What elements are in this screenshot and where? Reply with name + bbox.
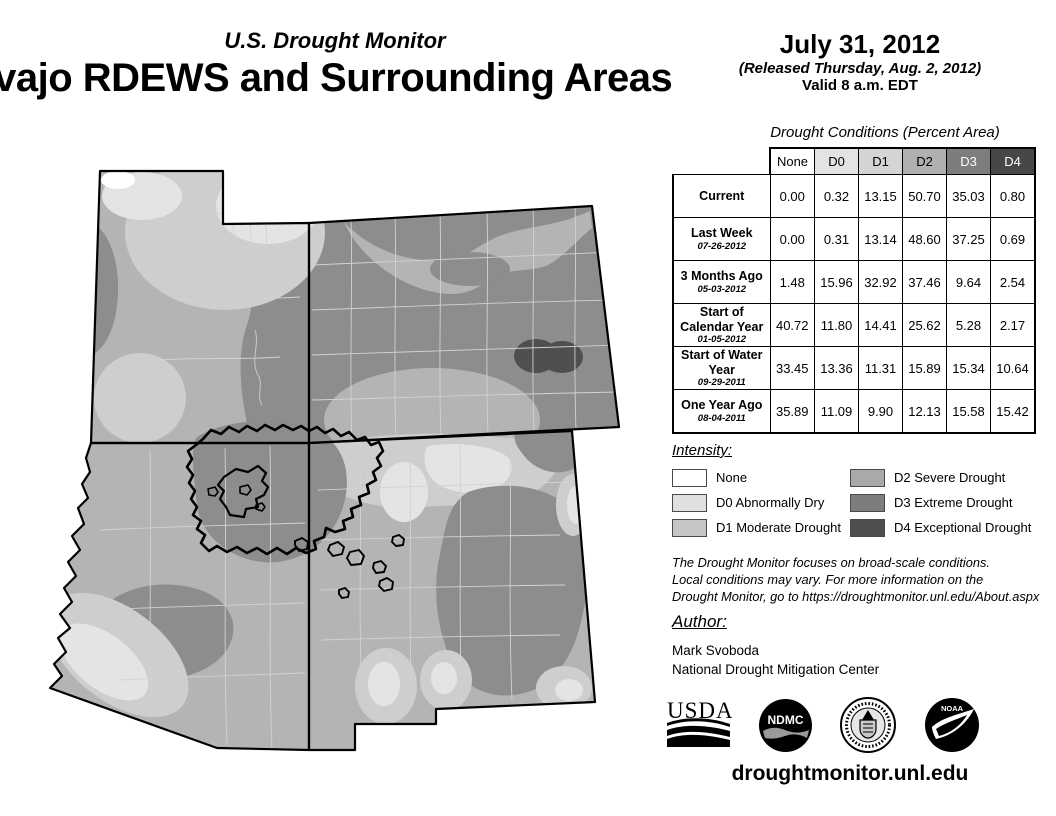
legend-swatch [672,519,707,537]
legend-item: D2 Severe Drought [850,465,1052,490]
usda-logo: USDA [666,699,732,751]
ndmc-logo: NDMC [758,698,813,753]
row-label: One Year Ago08-04-2011 [673,390,770,434]
value-cell: 11.09 [815,390,859,434]
value-cell: 13.36 [815,347,859,390]
row-label-text: Start of Calendar Year [674,305,770,334]
value-cell: 5.28 [947,304,991,347]
release-date: (Released Thursday, Aug. 2, 2012) [690,60,1030,77]
column-header-d2: D2 [903,148,947,175]
logo-row: USDA NDMC NOAA [666,696,1046,754]
value-cell: 15.58 [947,390,991,434]
valid-time: Valid 8 a.m. EDT [690,77,1030,94]
value-cell: 0.00 [770,175,815,218]
value-cell: 37.46 [903,261,947,304]
intensity-legend: Intensity: NoneD0 Abnormally DryD1 Moder… [672,442,1052,540]
table-row: Start of Calendar Year01-05-201240.7211.… [673,304,1035,347]
legend-item: D1 Moderate Drought [672,515,850,540]
corner-cell [673,148,770,175]
disclaimer-line: Drought Monitor, go to https://droughtmo… [672,588,1052,605]
map-date: July 31, 2012 [690,30,1030,60]
row-label-date: 05-03-2012 [674,284,770,295]
legend-label: D3 Extreme Drought [885,495,1013,510]
map-title: Navajo RDEWS and Surrounding Areas [0,56,672,101]
value-cell: 12.13 [903,390,947,434]
legend-item: D4 Exceptional Drought [850,515,1052,540]
svg-text:NDMC: NDMC [768,713,804,727]
row-label: Last Week07-26-2012 [673,218,770,261]
column-header-d0: D0 [815,148,859,175]
value-cell: 15.42 [991,390,1036,434]
legend-label: D1 Moderate Drought [707,520,841,535]
disclaimer-line: Local conditions may vary. For more info… [672,571,1052,588]
legend-swatch [850,469,885,487]
commerce-seal-logo [839,696,897,754]
value-cell: 15.34 [947,347,991,390]
legend-swatch [850,494,885,512]
row-label-text: Current [674,189,770,203]
value-cell: 11.80 [815,304,859,347]
legend-item: D3 Extreme Drought [850,490,1052,515]
author-org: National Drought Mitigation Center [672,660,879,679]
column-header-none: None [770,148,815,175]
value-cell: 10.64 [991,347,1036,390]
row-label-date: 09-29-2011 [674,377,770,388]
drought-shading [25,150,640,770]
disclaimer-line: The Drought Monitor focuses on broad-sca… [672,554,1052,571]
value-cell: 15.96 [815,261,859,304]
row-label-date: 01-05-2012 [674,334,770,345]
value-cell: 0.69 [991,218,1036,261]
legend-label: D0 Abnormally Dry [707,495,824,510]
value-cell: 40.72 [770,304,815,347]
table-row: Start of Water Year09-29-201133.4513.361… [673,347,1035,390]
author-name: Mark Svoboda [672,641,879,660]
legend-swatch [850,519,885,537]
value-cell: 32.92 [859,261,903,304]
value-cell: 33.45 [770,347,815,390]
table-header-row: NoneD0D1D2D3D4 [673,148,1035,175]
value-cell: 1.48 [770,261,815,304]
legend-label: D4 Exceptional Drought [885,520,1031,535]
value-cell: 50.70 [903,175,947,218]
value-cell: 9.90 [859,390,903,434]
table-row: Current0.000.3213.1550.7035.030.80 [673,175,1035,218]
conditions-table-block: Drought Conditions (Percent Area) NoneD0… [672,124,1028,434]
value-cell: 14.41 [859,304,903,347]
value-cell: 35.03 [947,175,991,218]
value-cell: 48.60 [903,218,947,261]
row-label-text: One Year Ago [674,398,770,412]
legend-items: NoneD0 Abnormally DryD1 Moderate Drought… [672,465,1052,540]
row-label-text: 3 Months Ago [674,269,770,283]
value-cell: 0.80 [991,175,1036,218]
table-row: 3 Months Ago05-03-20121.4815.9632.9237.4… [673,261,1035,304]
disclaimer: The Drought Monitor focuses on broad-sca… [672,554,1052,605]
column-header-d3: D3 [947,148,991,175]
site-url: droughtmonitor.unl.edu [672,762,1028,786]
row-label-date: 08-04-2011 [674,413,770,424]
value-cell: 11.31 [859,347,903,390]
legend-item: D0 Abnormally Dry [672,490,850,515]
value-cell: 25.62 [903,304,947,347]
table-title: Drought Conditions (Percent Area) [742,124,1028,141]
row-label-text: Start of Water Year [674,348,770,377]
author-title: Author: [672,612,879,632]
row-label: 3 Months Ago05-03-2012 [673,261,770,304]
d1-utah-southwest [94,353,186,443]
legend-label: D2 Severe Drought [885,470,1005,485]
legend-item: None [672,465,850,490]
legend-swatch [672,494,707,512]
value-cell: 0.31 [815,218,859,261]
monitor-title: U.S. Drought Monitor [120,28,550,54]
column-header-d1: D1 [859,148,903,175]
row-label: Current [673,175,770,218]
table-row: Last Week07-26-20120.000.3113.1448.6037.… [673,218,1035,261]
value-cell: 35.89 [770,390,815,434]
value-cell: 15.89 [903,347,947,390]
value-cell: 0.32 [815,175,859,218]
legend-label: None [707,470,747,485]
column-header-d4: D4 [991,148,1036,175]
value-cell: 13.14 [859,218,903,261]
value-cell: 9.64 [947,261,991,304]
value-cell: 13.15 [859,175,903,218]
date-block: July 31, 2012 (Released Thursday, Aug. 2… [690,30,1030,94]
legend-title: Intensity: [672,442,1052,459]
value-cell: 2.17 [991,304,1036,347]
row-label-text: Last Week [674,226,770,240]
value-cell: 2.54 [991,261,1036,304]
drought-monitor-page: { "header": { "monitor_title": "U.S. Dro… [0,0,1056,816]
table-row: One Year Ago08-04-201135.8911.099.9012.1… [673,390,1035,434]
svg-text:NOAA: NOAA [941,704,964,713]
row-label: Start of Water Year09-29-2011 [673,347,770,390]
legend-swatch [672,469,707,487]
noaa-logo: NOAA [923,696,981,754]
conditions-table: NoneD0D1D2D3D4 Current0.000.3213.1550.70… [672,147,1036,434]
row-label-date: 07-26-2012 [674,241,770,252]
value-cell: 37.25 [947,218,991,261]
author-block: Author: Mark Svoboda National Drought Mi… [672,612,879,679]
row-label: Start of Calendar Year01-05-2012 [673,304,770,347]
value-cell: 0.00 [770,218,815,261]
